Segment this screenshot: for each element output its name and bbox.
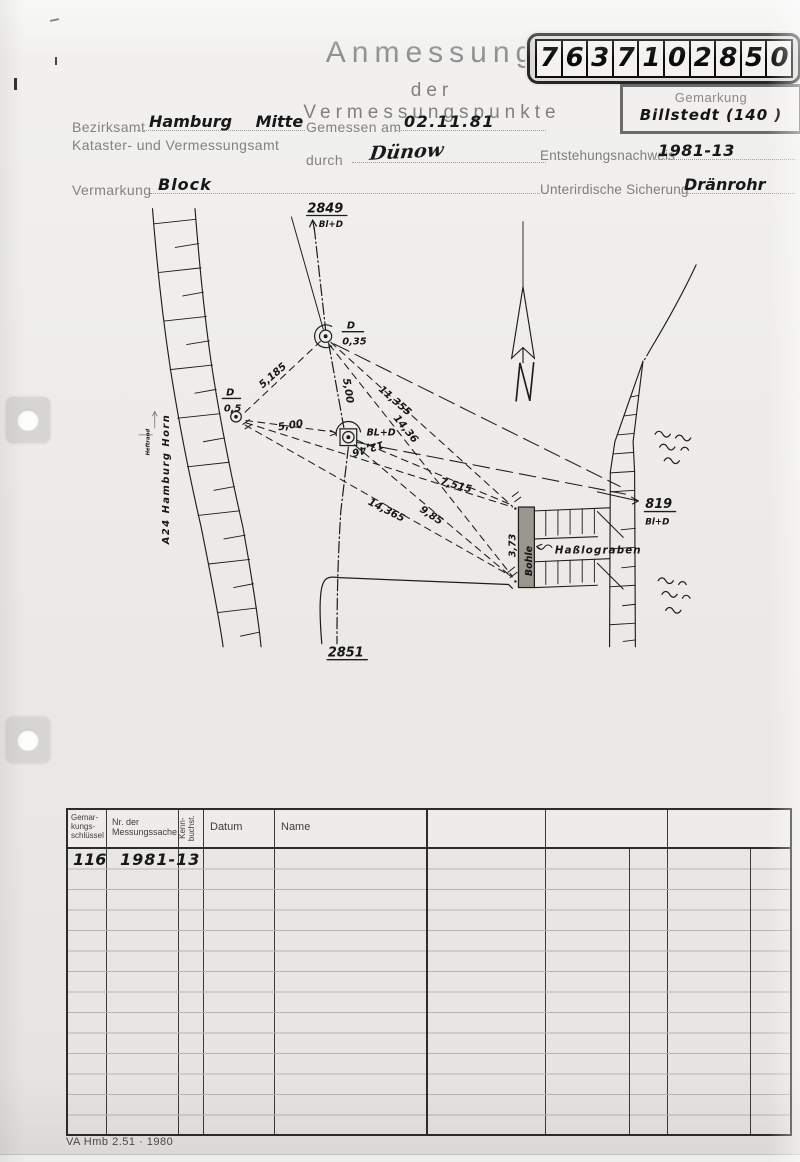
col-messungssache: Nr. der Messungssache bbox=[112, 817, 178, 838]
point-819-type: Bl+D bbox=[645, 518, 669, 528]
scanned-survey-form: Anmessung der Vermessungspunkte 7 6 3 7 … bbox=[0, 0, 800, 1162]
point-b-label-bottom: 0,35 bbox=[342, 337, 366, 348]
measure-500-h: 5,00 bbox=[277, 418, 304, 434]
stream-wavy-arrow bbox=[537, 544, 552, 549]
point-a-label-top: D bbox=[226, 387, 234, 398]
road-label: A24 Hamburg Horn bbox=[161, 414, 172, 546]
surveyor-signature: Dünow bbox=[368, 139, 444, 165]
digit-cell: 3 bbox=[586, 39, 614, 78]
bohle-width-label: 3,73 bbox=[507, 533, 518, 557]
digit-cell: 1 bbox=[637, 39, 665, 78]
gemessen-label: Gemessen am bbox=[306, 119, 401, 135]
right-bank-wedge bbox=[610, 265, 697, 647]
point-819-number: 819 bbox=[645, 497, 672, 512]
digit-cell: 6 bbox=[561, 39, 589, 78]
heftrand-label: Heftrand bbox=[145, 429, 151, 456]
col-gemarkungsschluessel: Gemar- kungs- schlüssel bbox=[71, 813, 105, 841]
measure-11355: 11,355 bbox=[376, 383, 414, 418]
bohle-label: Bohle bbox=[524, 545, 535, 576]
digit-cell: 5 bbox=[740, 39, 768, 78]
point-c-label: BL+D bbox=[367, 428, 396, 439]
gemessen-value: 02.11.81 bbox=[404, 112, 495, 131]
point-a-label-bottom: 0,5 bbox=[224, 403, 242, 414]
page-title: Anmessung bbox=[300, 36, 564, 70]
row1-messungssache: 1981-13 bbox=[120, 850, 200, 869]
form-number-footer: VA Hmb 2.51 · 1980 bbox=[66, 1136, 173, 1148]
sicherung-value: Dränrohr bbox=[684, 175, 766, 194]
point-number-sticker: 7 6 3 7 1 0 2 8 5 0 bbox=[527, 33, 800, 84]
point-2851-number: 2851 bbox=[328, 646, 364, 661]
col-kennbuchst: Kenn- buchst. bbox=[178, 812, 196, 844]
digit-cell: 0 bbox=[765, 39, 793, 78]
gemarkung-label: Gemarkung bbox=[623, 90, 799, 105]
digit-cell: 2 bbox=[689, 39, 717, 78]
bottom-road-edge bbox=[320, 577, 512, 644]
gemarkung-value: Billstedt (140 ) bbox=[623, 106, 799, 124]
measure-500-v: 5,00 bbox=[340, 377, 356, 404]
digit-cell: 8 bbox=[714, 39, 742, 78]
point-number-underlines bbox=[307, 216, 676, 660]
point-b-label-top: D bbox=[347, 321, 355, 332]
long-rays-to-819 bbox=[334, 344, 626, 494]
north-arrow bbox=[512, 222, 535, 401]
point-2849-type: Bl+D bbox=[319, 220, 343, 230]
survey-sketch: 2849 Bl+D 2851 819 Bl+D D 0,35 D 0,5 BL+… bbox=[0, 195, 800, 810]
digit-cell: 7 bbox=[612, 39, 640, 78]
measure-985: 9,85 bbox=[417, 503, 445, 527]
col-datum: Datum bbox=[210, 821, 242, 834]
digit-cell: 7 bbox=[535, 39, 563, 78]
scan-speck bbox=[50, 18, 59, 22]
col-name: Name bbox=[281, 821, 310, 834]
bezirksamt-value: Hamburg Mitte bbox=[149, 112, 303, 131]
scan-speck bbox=[55, 57, 57, 65]
scan-speck bbox=[14, 78, 17, 90]
scan-edge bbox=[0, 1154, 800, 1162]
digit-cell: 0 bbox=[663, 39, 691, 78]
arrow-to-819 bbox=[597, 492, 638, 504]
vermarkung-value: Block bbox=[158, 175, 212, 194]
measure-7515: 7,515 bbox=[439, 476, 473, 496]
stream-label: Haßlograben bbox=[555, 544, 642, 556]
row1-gemarkung-key: 116 bbox=[73, 850, 106, 869]
point-c-symbol bbox=[330, 422, 360, 446]
entstehung-value: 1981-13 bbox=[658, 141, 735, 160]
secondary-log-table bbox=[426, 808, 792, 1136]
measure-14365: 14,365 bbox=[366, 496, 407, 525]
amt-line: Kataster- und Vermessungsamt bbox=[72, 137, 279, 153]
gemarkung-box: Gemarkung Billstedt (140 ) bbox=[620, 84, 800, 134]
measurement-log-table: Gemar- kungs- schlüssel Nr. der Messungs… bbox=[66, 808, 428, 1136]
durch-label: durch bbox=[306, 152, 343, 168]
bezirksamt-label: Bezirksamt bbox=[72, 119, 145, 135]
point-2849-number: 2849 bbox=[307, 201, 343, 216]
survey-rays bbox=[245, 342, 513, 578]
